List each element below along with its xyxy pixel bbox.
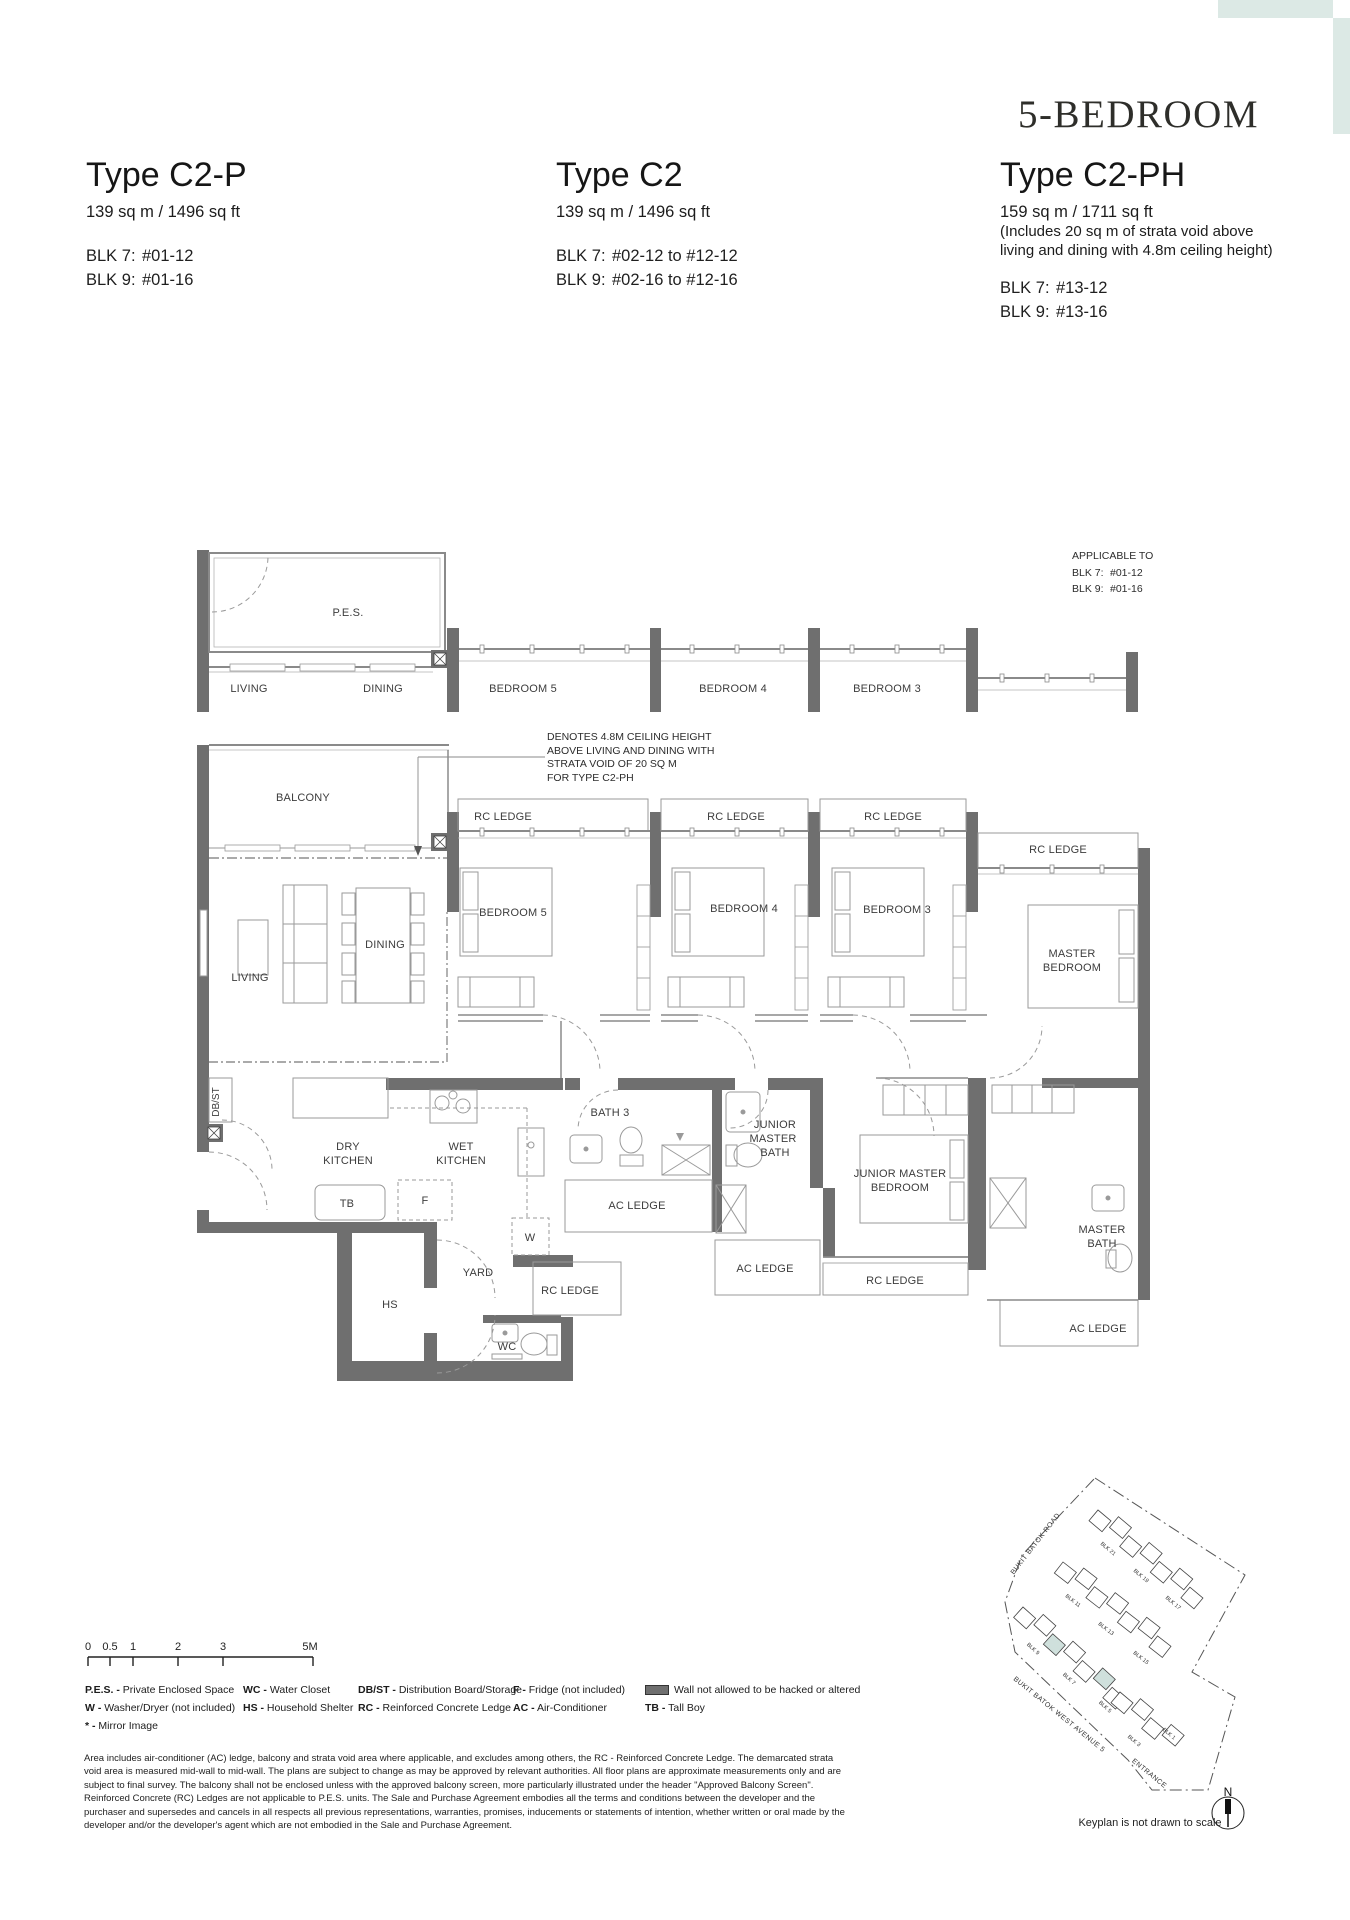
room-label-bedroom4: BEDROOM 4 xyxy=(710,903,778,915)
bedroom-partitions xyxy=(458,1015,987,1078)
scale-tick: 0 xyxy=(85,1641,91,1653)
label-rc-ledge: RC LEDGE xyxy=(866,1275,924,1287)
block-row-1 xyxy=(1089,1504,1208,1609)
highlighted-unit xyxy=(1043,1634,1065,1656)
room-label-master-bedroom: BEDROOM xyxy=(1043,962,1101,974)
room-label-wc: WC xyxy=(498,1341,517,1353)
furniture xyxy=(200,868,1138,1223)
main-plan: BALCONY RC LEDGE RC LEDGE RC LEDGE RC LE… xyxy=(196,745,1150,1381)
label-ac-ledge: AC LEDGE xyxy=(1069,1323,1126,1335)
wall-swatch-icon xyxy=(645,1685,669,1695)
entry-door-arc-icon xyxy=(209,1152,267,1210)
room-label-living: LIVING xyxy=(230,683,267,695)
label-fridge: F xyxy=(422,1195,429,1207)
label-tb: TB xyxy=(340,1198,354,1210)
scale-tick: 5M xyxy=(302,1641,317,1653)
keyplan-blk-label: BLK 19 xyxy=(1132,1568,1150,1584)
svg-text:BEDROOM: BEDROOM xyxy=(871,1182,929,1194)
svg-text:KITCHEN: KITCHEN xyxy=(323,1155,373,1167)
label-washer: W xyxy=(525,1232,536,1244)
scale-tick: 2 xyxy=(175,1641,181,1653)
strip-plan: P.E.S. LIVING DINING BEDROOM 5 BEDROOM 4… xyxy=(197,550,1138,712)
room-label-balcony: BALCONY xyxy=(276,792,330,804)
keyplan-blk-label: BLK 15 xyxy=(1132,1650,1150,1666)
block-row-4 xyxy=(1111,1686,1184,1752)
window-ticks xyxy=(480,645,1094,682)
rc-ledges xyxy=(458,799,1138,868)
room-label-hs: HS xyxy=(382,1299,398,1311)
room-label-dining: DINING xyxy=(365,939,405,951)
room-label-junior-master-bath: JUNIOR xyxy=(754,1119,796,1131)
keyplan-road-label: BUKIT BATOK ROAD xyxy=(1010,1512,1062,1576)
room-label-wet-kitchen: WET xyxy=(448,1141,473,1153)
door-arc-icon xyxy=(212,556,268,612)
room-label-bedroom4: BEDROOM 4 xyxy=(699,683,767,695)
label-ac-ledge: AC LEDGE xyxy=(608,1200,665,1212)
room-label-bedroom3: BEDROOM 3 xyxy=(863,904,931,916)
scale-tick: 1 xyxy=(130,1641,136,1653)
room-label-bedroom5: BEDROOM 5 xyxy=(489,683,557,695)
keyplan-blk-label: BLK 17 xyxy=(1164,1595,1182,1611)
keyplan-blk-label: BLK 9 xyxy=(1025,1642,1040,1656)
disclaimer-text: Area includes air-conditioner (AC) ledge… xyxy=(84,1752,846,1832)
keyplan: BLK 21 BLK 19 BLK 17 BLK 11 BLK 13 BLK 1… xyxy=(1005,1478,1245,1829)
room-label-junior-master-bedroom: JUNIOR MASTER xyxy=(854,1168,946,1180)
room-label-rc-ledge: RC LEDGE xyxy=(864,811,922,823)
scale-tick: 0.5 xyxy=(102,1641,117,1653)
room-label-bath3: BATH 3 xyxy=(591,1107,630,1119)
keyplan-entrance-label: ENTRANCE xyxy=(1130,1758,1167,1790)
keyplan-blk-label: BLK 21 xyxy=(1099,1541,1117,1557)
label-ac-ledge: AC LEDGE xyxy=(736,1263,793,1275)
master-bath xyxy=(987,1085,1138,1300)
room-label-dining: DINING xyxy=(363,683,403,695)
svg-text:BATH: BATH xyxy=(1087,1238,1116,1250)
brochure-page: 5-BEDROOM Type C2-P 139 sq m / 1496 sq f… xyxy=(0,0,1350,1920)
keyplan-blk-label: BLK 7 xyxy=(1061,1672,1076,1686)
svg-text:BATH: BATH xyxy=(760,1147,789,1159)
keyplan-road-label: BUKIT BATOK WEST AVENUE 5 xyxy=(1012,1676,1106,1754)
svg-text:N: N xyxy=(1224,1785,1233,1799)
scale-tick: 3 xyxy=(220,1641,226,1653)
room-label-rc-ledge: RC LEDGE xyxy=(474,811,532,823)
room-label-dry-kitchen: DRY xyxy=(336,1141,360,1153)
keyplan-blk-label: BLK 13 xyxy=(1097,1621,1115,1637)
highlighted-unit xyxy=(1093,1668,1115,1690)
room-label-bedroom3: BEDROOM 3 xyxy=(853,683,921,695)
walls xyxy=(197,745,1150,1381)
room-label-rc-ledge: RC LEDGE xyxy=(707,811,765,823)
room-label-master-bath: MASTER xyxy=(1078,1224,1125,1236)
label-rc-ledge: RC LEDGE xyxy=(541,1285,599,1297)
room-label-bedroom5: BEDROOM 5 xyxy=(479,907,547,919)
scale-bar: 0 0.5 1 2 3 5M xyxy=(85,1641,318,1666)
keyplan-note: Keyplan is not drawn to scale xyxy=(1078,1817,1221,1829)
room-label-living: LIVING xyxy=(231,972,268,984)
svg-text:MASTER: MASTER xyxy=(749,1133,796,1145)
floorplan-canvas: P.E.S. LIVING DINING BEDROOM 5 BEDROOM 4… xyxy=(0,0,1350,1920)
room-label-dbst: DB/ST xyxy=(211,1087,222,1116)
room-label-rc-ledge: RC LEDGE xyxy=(1029,844,1087,856)
window-band xyxy=(459,628,1138,712)
keyplan-blk-label: BLK 3 xyxy=(1126,1734,1141,1748)
room-label-pes: P.E.S. xyxy=(333,607,364,619)
keyplan-blk-label: BLK 11 xyxy=(1064,1593,1082,1609)
room-label-master-bedroom: MASTER xyxy=(1048,948,1095,960)
bath3 xyxy=(570,1127,710,1175)
svg-text:KITCHEN: KITCHEN xyxy=(436,1155,486,1167)
room-label-yard: YARD xyxy=(463,1267,494,1279)
